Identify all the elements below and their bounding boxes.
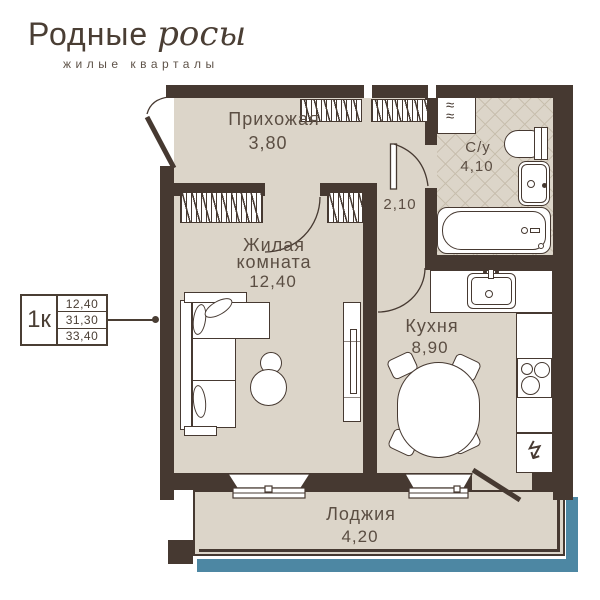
wall-left [160,166,174,500]
cooktop-burner [521,376,540,395]
kitchen-faucet [488,269,494,279]
bathroom-name: С/у [465,139,491,156]
closet [327,192,363,223]
floorplan-page: Родныеросы жилые кварталы 1к 12,40 31,30… [0,0,600,600]
sofa-back [184,426,217,436]
apartment-area-main: 31,30 [58,312,106,328]
tv-shelf-line [344,341,360,342]
apartment-info-card: 1к 12,40 31,30 33,40 [20,294,108,346]
wall-corridor-living [363,183,377,473]
entrance-door-arc [147,97,169,114]
apartment-area-total: 33,40 [58,329,106,344]
wall-bathroom-kitchen [425,255,553,270]
brand-logo: Родныеросы [28,14,246,54]
kitchen-faucet-knob [483,270,487,274]
toilet-tank [534,127,548,160]
accent-bar-bottom [197,559,578,572]
kitchen-sink-drain [485,290,493,298]
sink-faucet [542,183,547,188]
wardrobe [180,192,263,223]
leader-dot [152,316,159,323]
kitchen-area: 8,90 [411,338,448,358]
cooktop-burner [521,363,533,375]
hallway-name: Прихожая [228,109,319,130]
washing-machine-icon: ≈ ≈ [446,98,454,124]
washing-machine [437,97,476,134]
brand-name-accent: росы [157,14,246,54]
wall-right [553,85,573,500]
kitchen-name: Кухня [405,316,458,337]
kitchen-faucet-knob [495,270,499,274]
loggia-pier [168,540,193,564]
bathtub-faucet [521,227,528,234]
balcony-door-opening [472,473,532,490]
hallway-area: 3,80 [248,133,287,154]
bathtub-drain [538,243,544,249]
tv-screen [350,329,357,394]
apartment-area-living: 12,40 [58,296,106,312]
living-name-line2: комната [236,252,311,273]
sink-drain [527,180,535,188]
sofa-armrest [180,300,192,430]
wall-joint-slit [428,85,436,98]
bathtub-spout [530,228,540,233]
tv-shelf-line [344,397,360,398]
bathroom-area: 4,10 [460,158,493,175]
armchair-seat [250,369,287,406]
leader-line [108,319,154,321]
brand-name-main: Родные [28,16,148,52]
cooktop-burner [534,362,550,378]
loggia-name: Лоджия [326,504,396,525]
dining-table [397,362,480,458]
accent-bar-right [566,497,578,572]
wall-joint-slit [364,85,372,98]
wardrobe [371,99,428,122]
corridor-area: 2,10 [383,196,416,213]
apartment-type-label: 1к [22,296,56,344]
loggia-area: 4,20 [341,527,378,547]
sofa-seat [192,338,236,381]
entrance-door-leaf [147,117,174,168]
living-area: 12,40 [249,272,297,292]
apartment-areas: 12,40 31,30 33,40 [56,296,106,344]
brand-tagline: жилые кварталы [63,57,219,71]
toilet-bowl [504,130,537,158]
